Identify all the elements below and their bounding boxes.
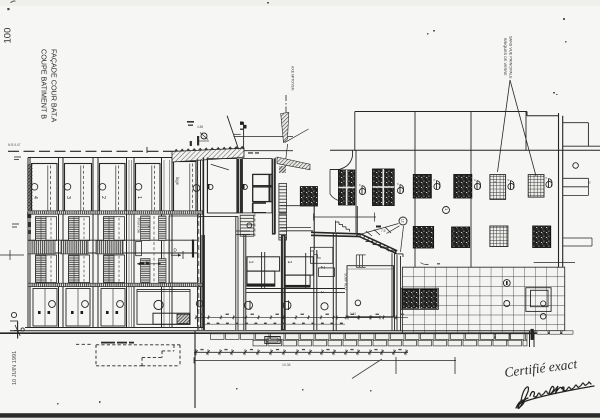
svg-text:COUPE BATIMENT B: COUPE BATIMENT B: [40, 49, 49, 119]
svg-text:4.88: 4.88: [197, 125, 203, 129]
svg-text:3: 3: [65, 196, 71, 199]
svg-text:1: 1: [136, 196, 142, 199]
svg-text:2: 2: [100, 196, 106, 199]
svg-text:Pierre ble: Pierre ble: [137, 218, 141, 233]
svg-text:12: 12: [401, 219, 405, 223]
svg-text:loge: loge: [175, 177, 180, 186]
svg-text:1.40: 1.40: [143, 260, 149, 264]
svg-text:100: 100: [3, 28, 14, 44]
svg-text:≡: ≡: [359, 183, 361, 187]
svg-text:4: 4: [32, 196, 38, 199]
svg-text:≡: ≡: [397, 182, 399, 186]
svg-text:7.5: 7.5: [381, 229, 386, 233]
svg-text:10.36: 10.36: [282, 363, 291, 367]
svg-text:N.B 5.47: N.B 5.47: [8, 143, 21, 147]
svg-text:≡: ≡: [434, 178, 436, 182]
svg-text:10 JUIN 1991: 10 JUIN 1991: [12, 351, 18, 385]
svg-text:1: 1: [248, 261, 254, 264]
svg-text:≡: ≡: [474, 178, 476, 182]
svg-text:≡: ≡: [546, 176, 548, 180]
svg-text:≡: ≡: [494, 180, 496, 184]
svg-text:≡: ≡: [550, 178, 552, 182]
svg-text:BRIQUES DE VERRE: BRIQUES DE VERRE: [503, 38, 507, 76]
svg-text:FAÇADE COUR BAT.A: FAÇADE COUR BAT.A: [50, 49, 59, 123]
svg-text:≡: ≡: [508, 178, 510, 182]
svg-text:1: 1: [286, 261, 292, 264]
svg-text:AXE MITOYEN: AXE MITOYEN: [291, 66, 295, 91]
svg-text:SANS VUE PRINCIPALE: SANS VUE PRINCIPALE: [509, 36, 513, 79]
